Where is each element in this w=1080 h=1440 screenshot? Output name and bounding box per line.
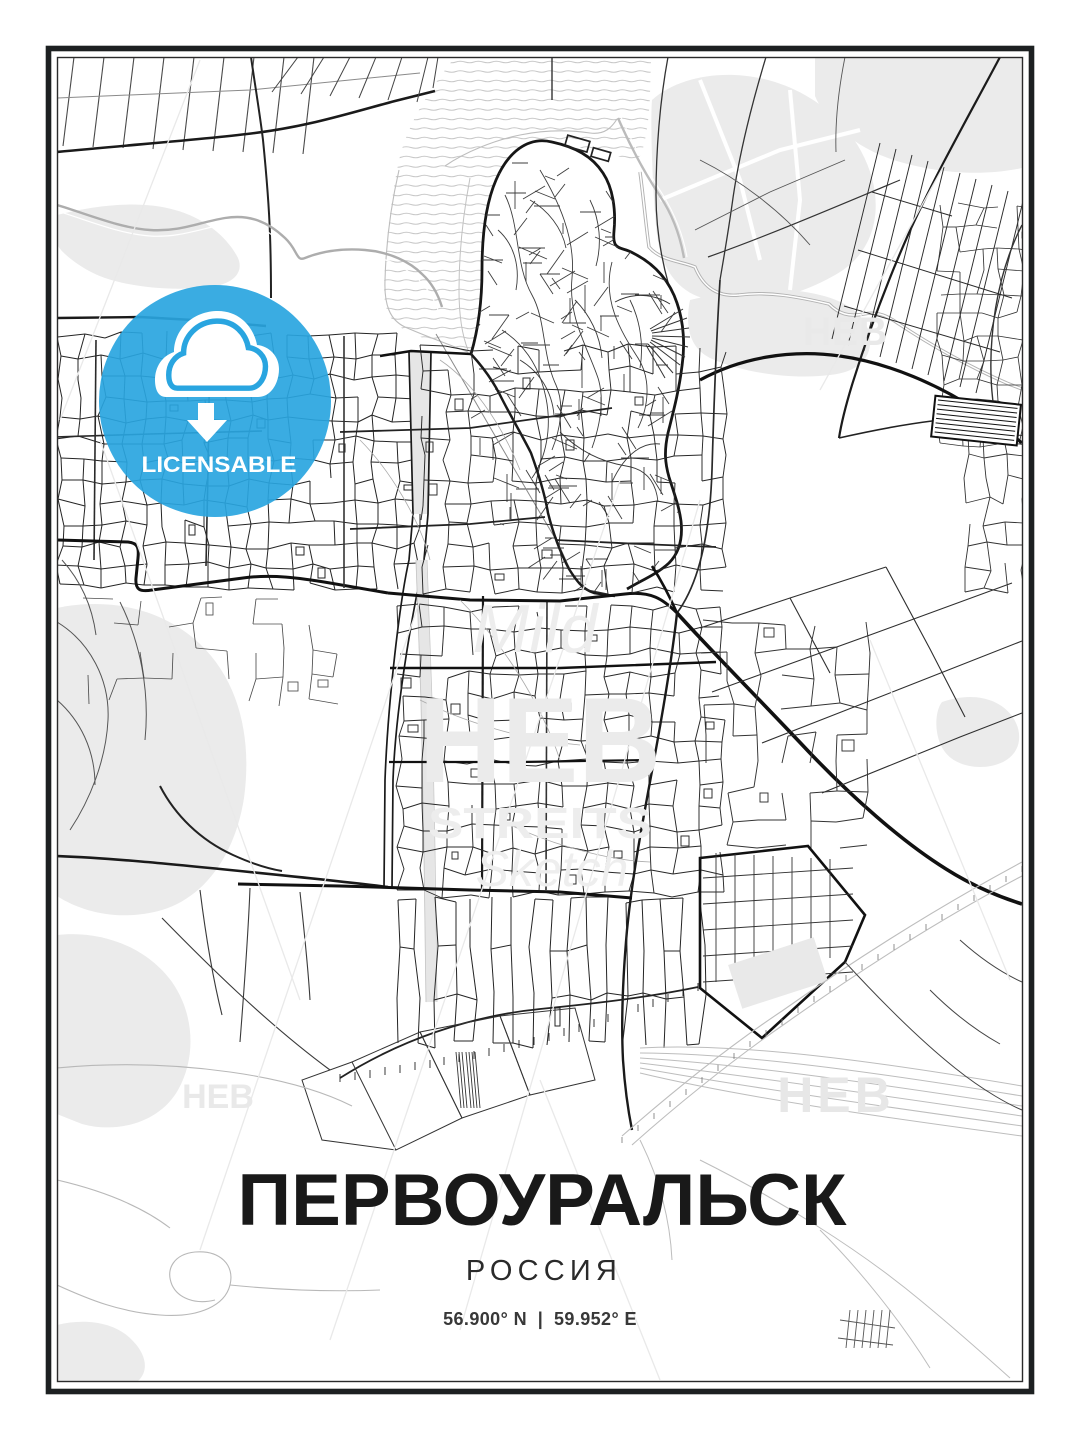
svg-text:РОССИЯ: РОССИЯ xyxy=(466,1255,622,1287)
svg-text:HEB: HEB xyxy=(419,672,661,808)
svg-text:HEB: HEB xyxy=(777,1067,895,1123)
svg-text:Sketch: Sketch xyxy=(476,841,629,897)
svg-text:HEB: HEB xyxy=(182,1078,254,1116)
svg-text:LICENSABLE: LICENSABLE xyxy=(142,452,297,477)
svg-text:Mild: Mild xyxy=(473,591,600,667)
svg-text:ПЕРВОУРАЛЬСК: ПЕРВОУРАЛЬСК xyxy=(238,1160,847,1241)
svg-text:56.900° N | 59.952° E: 56.900° N | 59.952° E xyxy=(443,1309,637,1329)
svg-text:HEB: HEB xyxy=(803,310,887,354)
